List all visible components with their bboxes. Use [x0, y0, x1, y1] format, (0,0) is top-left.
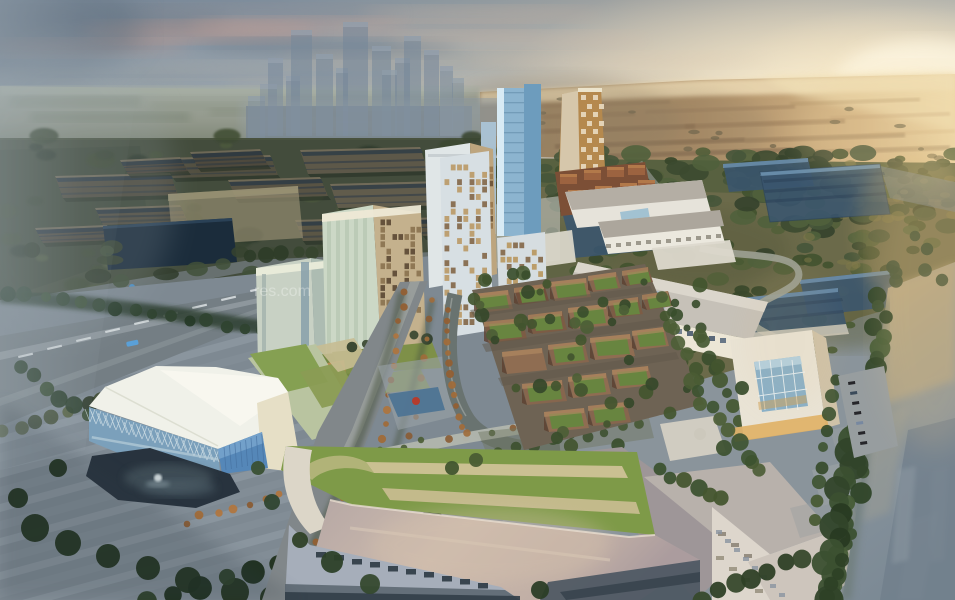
- svg-text:res.com: res.com: [254, 283, 311, 300]
